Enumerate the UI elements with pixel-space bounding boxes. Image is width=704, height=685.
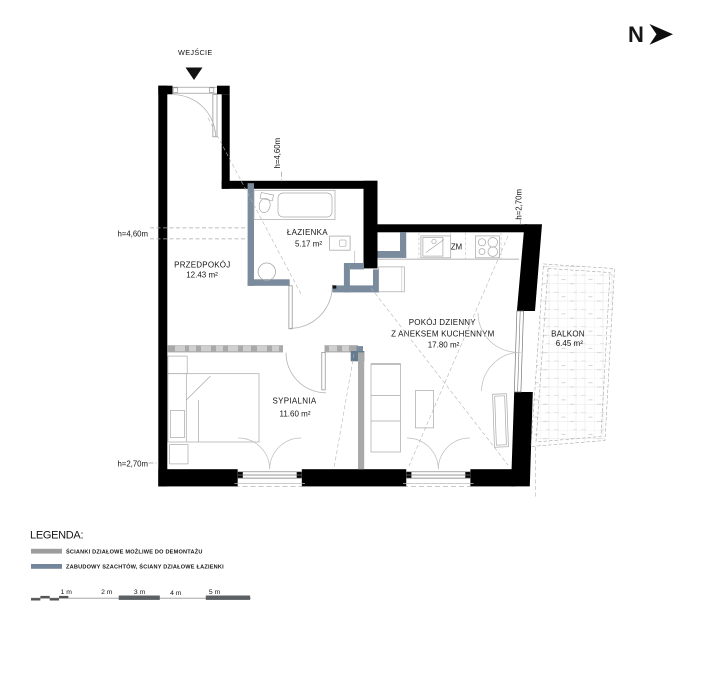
svg-text:h=4,60m: h=4,60m (117, 229, 148, 238)
svg-text:6.45 m²: 6.45 m² (556, 339, 583, 348)
svg-text:PRZEDPOKÓJ: PRZEDPOKÓJ (174, 261, 230, 270)
svg-text:WEJŚCIE: WEJŚCIE (178, 48, 213, 57)
svg-text:5.17 m²: 5.17 m² (295, 240, 322, 249)
svg-text:N: N (628, 22, 644, 47)
svg-text:4 m: 4 m (170, 590, 182, 597)
svg-text:SYPIALNIA: SYPIALNIA (272, 396, 316, 405)
svg-text:h=2,70m: h=2,70m (117, 459, 148, 468)
svg-text:h=4,60m: h=4,60m (273, 138, 282, 169)
svg-text:1 m: 1 m (61, 589, 73, 596)
svg-text:17.80 m²: 17.80 m² (428, 340, 460, 349)
svg-text:12.43 m²: 12.43 m² (186, 271, 218, 280)
svg-text:ZM: ZM (451, 242, 462, 251)
svg-text:11.60 m²: 11.60 m² (280, 409, 311, 418)
svg-text:h=2,70m: h=2,70m (515, 189, 524, 220)
svg-text:ŁAZIENKA: ŁAZIENKA (287, 228, 328, 237)
svg-text:POKÓJ DZIENNY: POKÓJ DZIENNY (409, 318, 477, 327)
svg-text:Z ANEKSEM KUCHENNYM: Z ANEKSEM KUCHENNYM (391, 330, 495, 339)
svg-text:5 m: 5 m (209, 589, 221, 596)
svg-text:BALKON: BALKON (551, 330, 585, 339)
svg-text:ZABUDOWY SZACHTÓW, ŚCIANY DZIA: ZABUDOWY SZACHTÓW, ŚCIANY DZIAŁOWE ŁAZIE… (66, 563, 224, 571)
svg-text:2 m: 2 m (101, 589, 113, 596)
svg-text:LEGENDA:: LEGENDA: (30, 529, 83, 541)
svg-text:ŚCIANKI DZIAŁOWE MOŻLIWE DO DE: ŚCIANKI DZIAŁOWE MOŻLIWE DO DEMONTAŻU (66, 549, 203, 556)
svg-text:3 m: 3 m (134, 589, 146, 596)
